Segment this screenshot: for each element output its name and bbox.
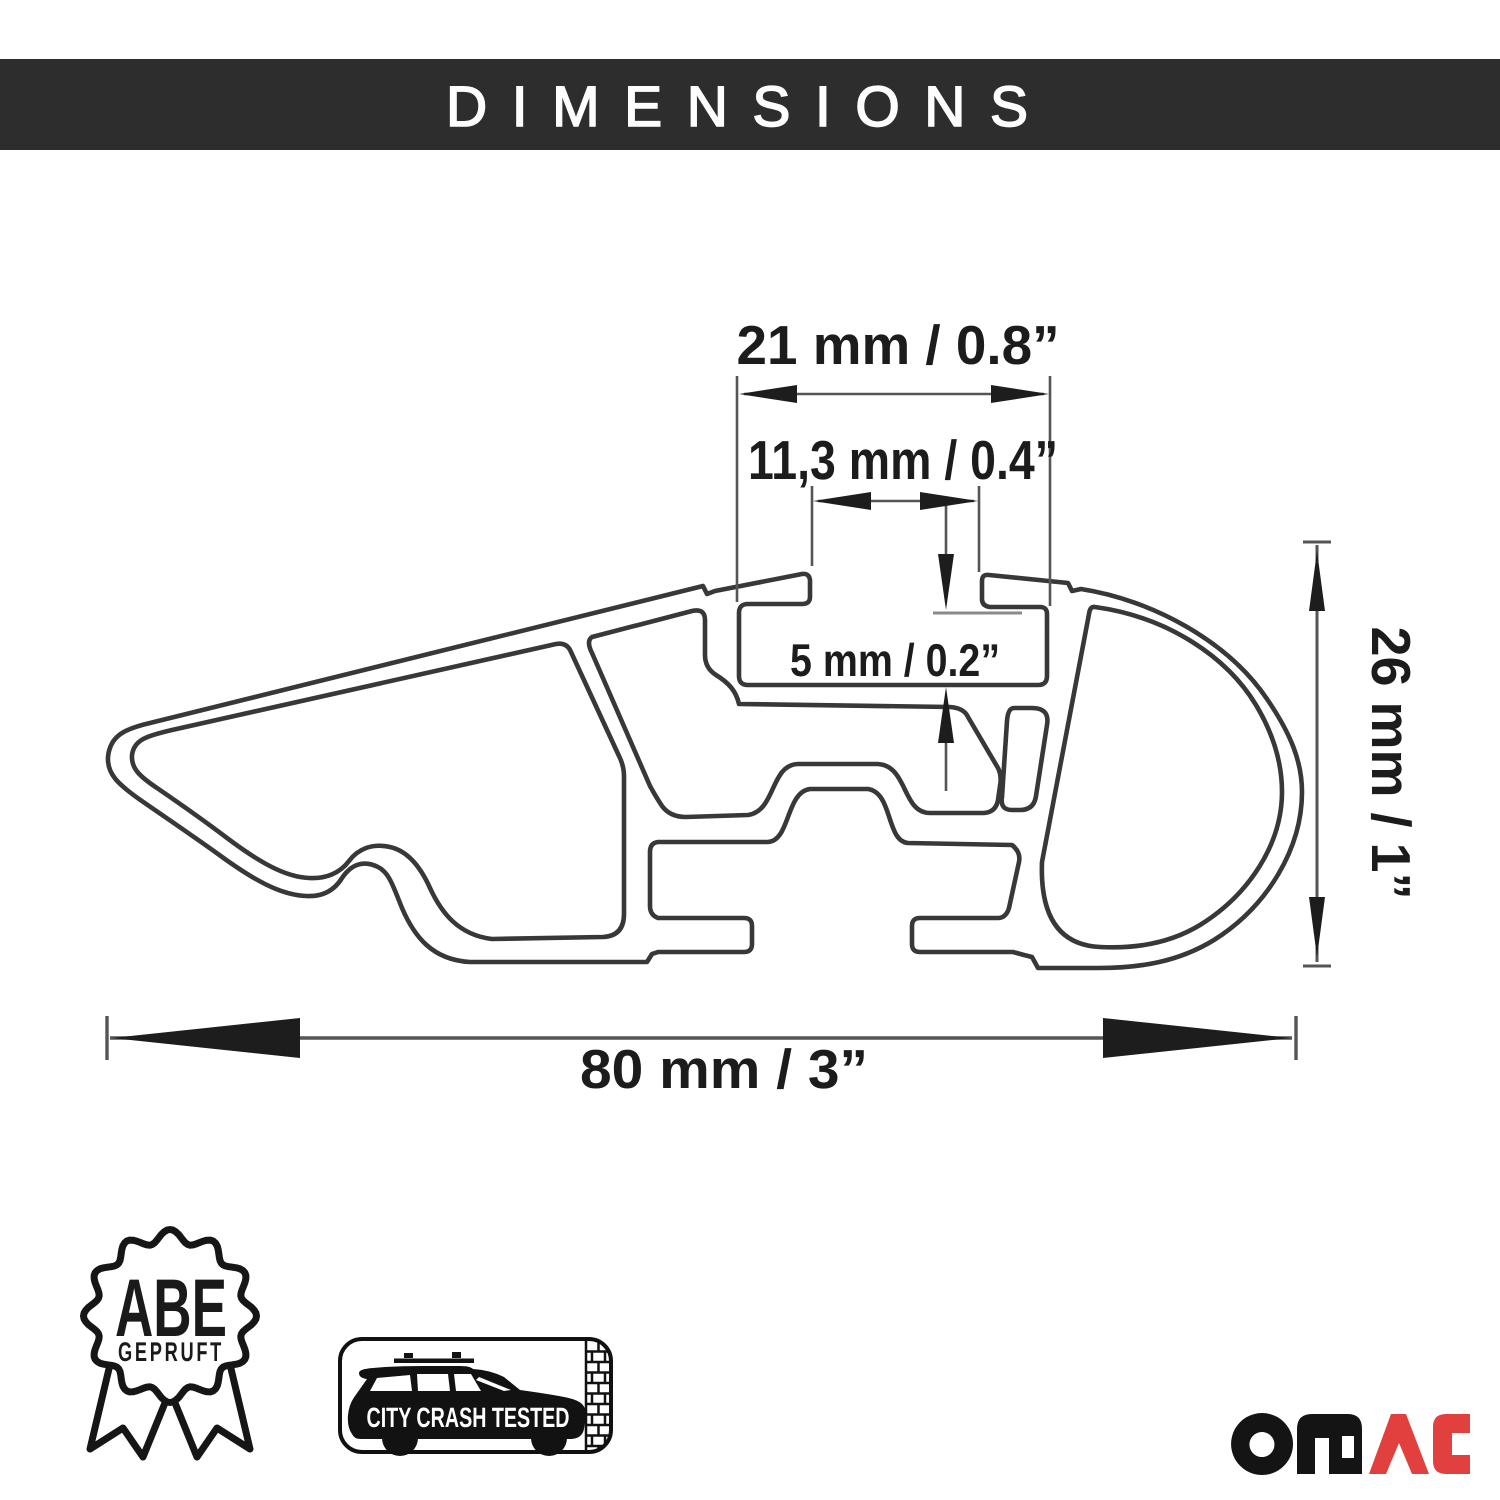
svg-text:5 mm / 0.2”: 5 mm / 0.2” [790, 634, 1000, 686]
svg-text:GEPRUFT: GEPRUFT [118, 1337, 224, 1367]
svg-text:80 mm / 3”: 80 mm / 3” [580, 1038, 868, 1100]
svg-text:11,3 mm / 0.4”: 11,3 mm / 0.4” [748, 429, 1058, 491]
svg-text:21 mm / 0.8”: 21 mm / 0.8” [737, 314, 1060, 376]
svg-text:CITY CRASH TESTED: CITY CRASH TESTED [367, 1402, 570, 1433]
svg-text:DIMENSIONS: DIMENSIONS [446, 75, 1054, 139]
svg-text:26 mm / 1”: 26 mm / 1” [1360, 627, 1422, 900]
